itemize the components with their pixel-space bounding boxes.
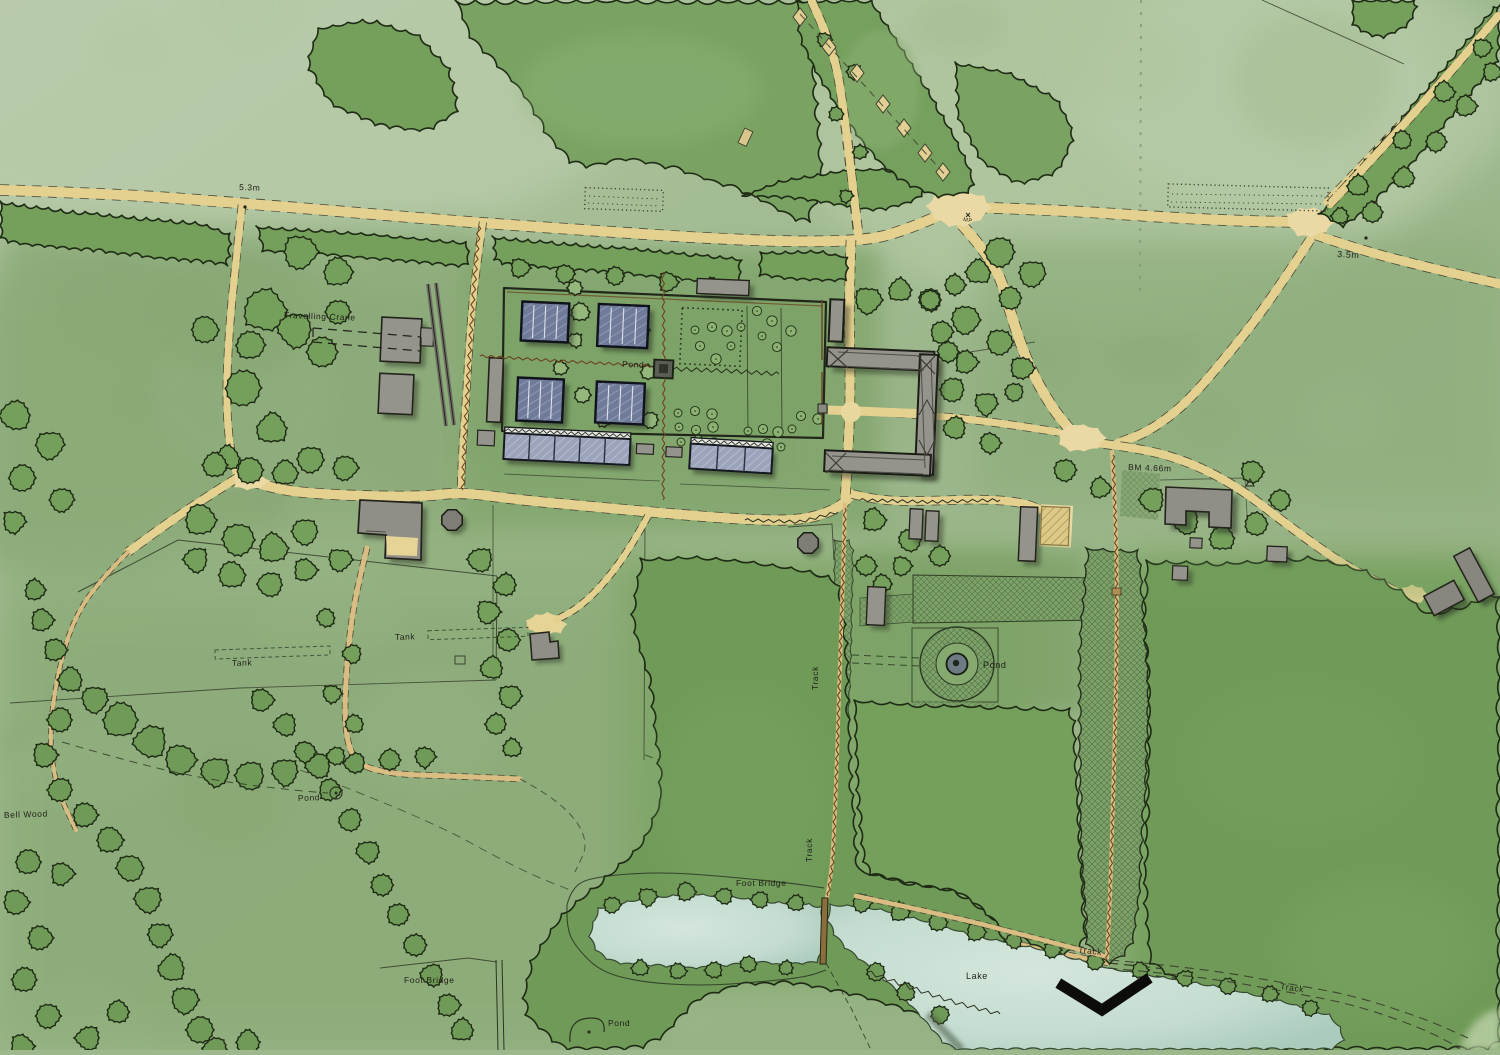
svg-text:Track: Track bbox=[810, 666, 820, 690]
svg-text:Pond: Pond bbox=[298, 792, 321, 803]
svg-text:Pond: Pond bbox=[608, 1018, 630, 1028]
svg-text:Foot Bridge: Foot Bridge bbox=[404, 975, 455, 985]
svg-text:Pond: Pond bbox=[622, 359, 645, 370]
svg-text:3.5m: 3.5m bbox=[1337, 249, 1360, 260]
svg-text:Lake: Lake bbox=[966, 971, 988, 981]
svg-text:Track: Track bbox=[804, 838, 814, 862]
svg-text:BM 4.66m: BM 4.66m bbox=[1128, 462, 1172, 474]
svg-text:5.3m: 5.3m bbox=[239, 182, 261, 193]
svg-text:Foot Bridge: Foot Bridge bbox=[736, 878, 787, 888]
svg-text:Pond: Pond bbox=[983, 660, 1006, 670]
svg-text:Tank: Tank bbox=[232, 657, 253, 668]
svg-text:Bell Wood: Bell Wood bbox=[4, 808, 48, 820]
svg-text:Tank: Tank bbox=[395, 631, 416, 642]
